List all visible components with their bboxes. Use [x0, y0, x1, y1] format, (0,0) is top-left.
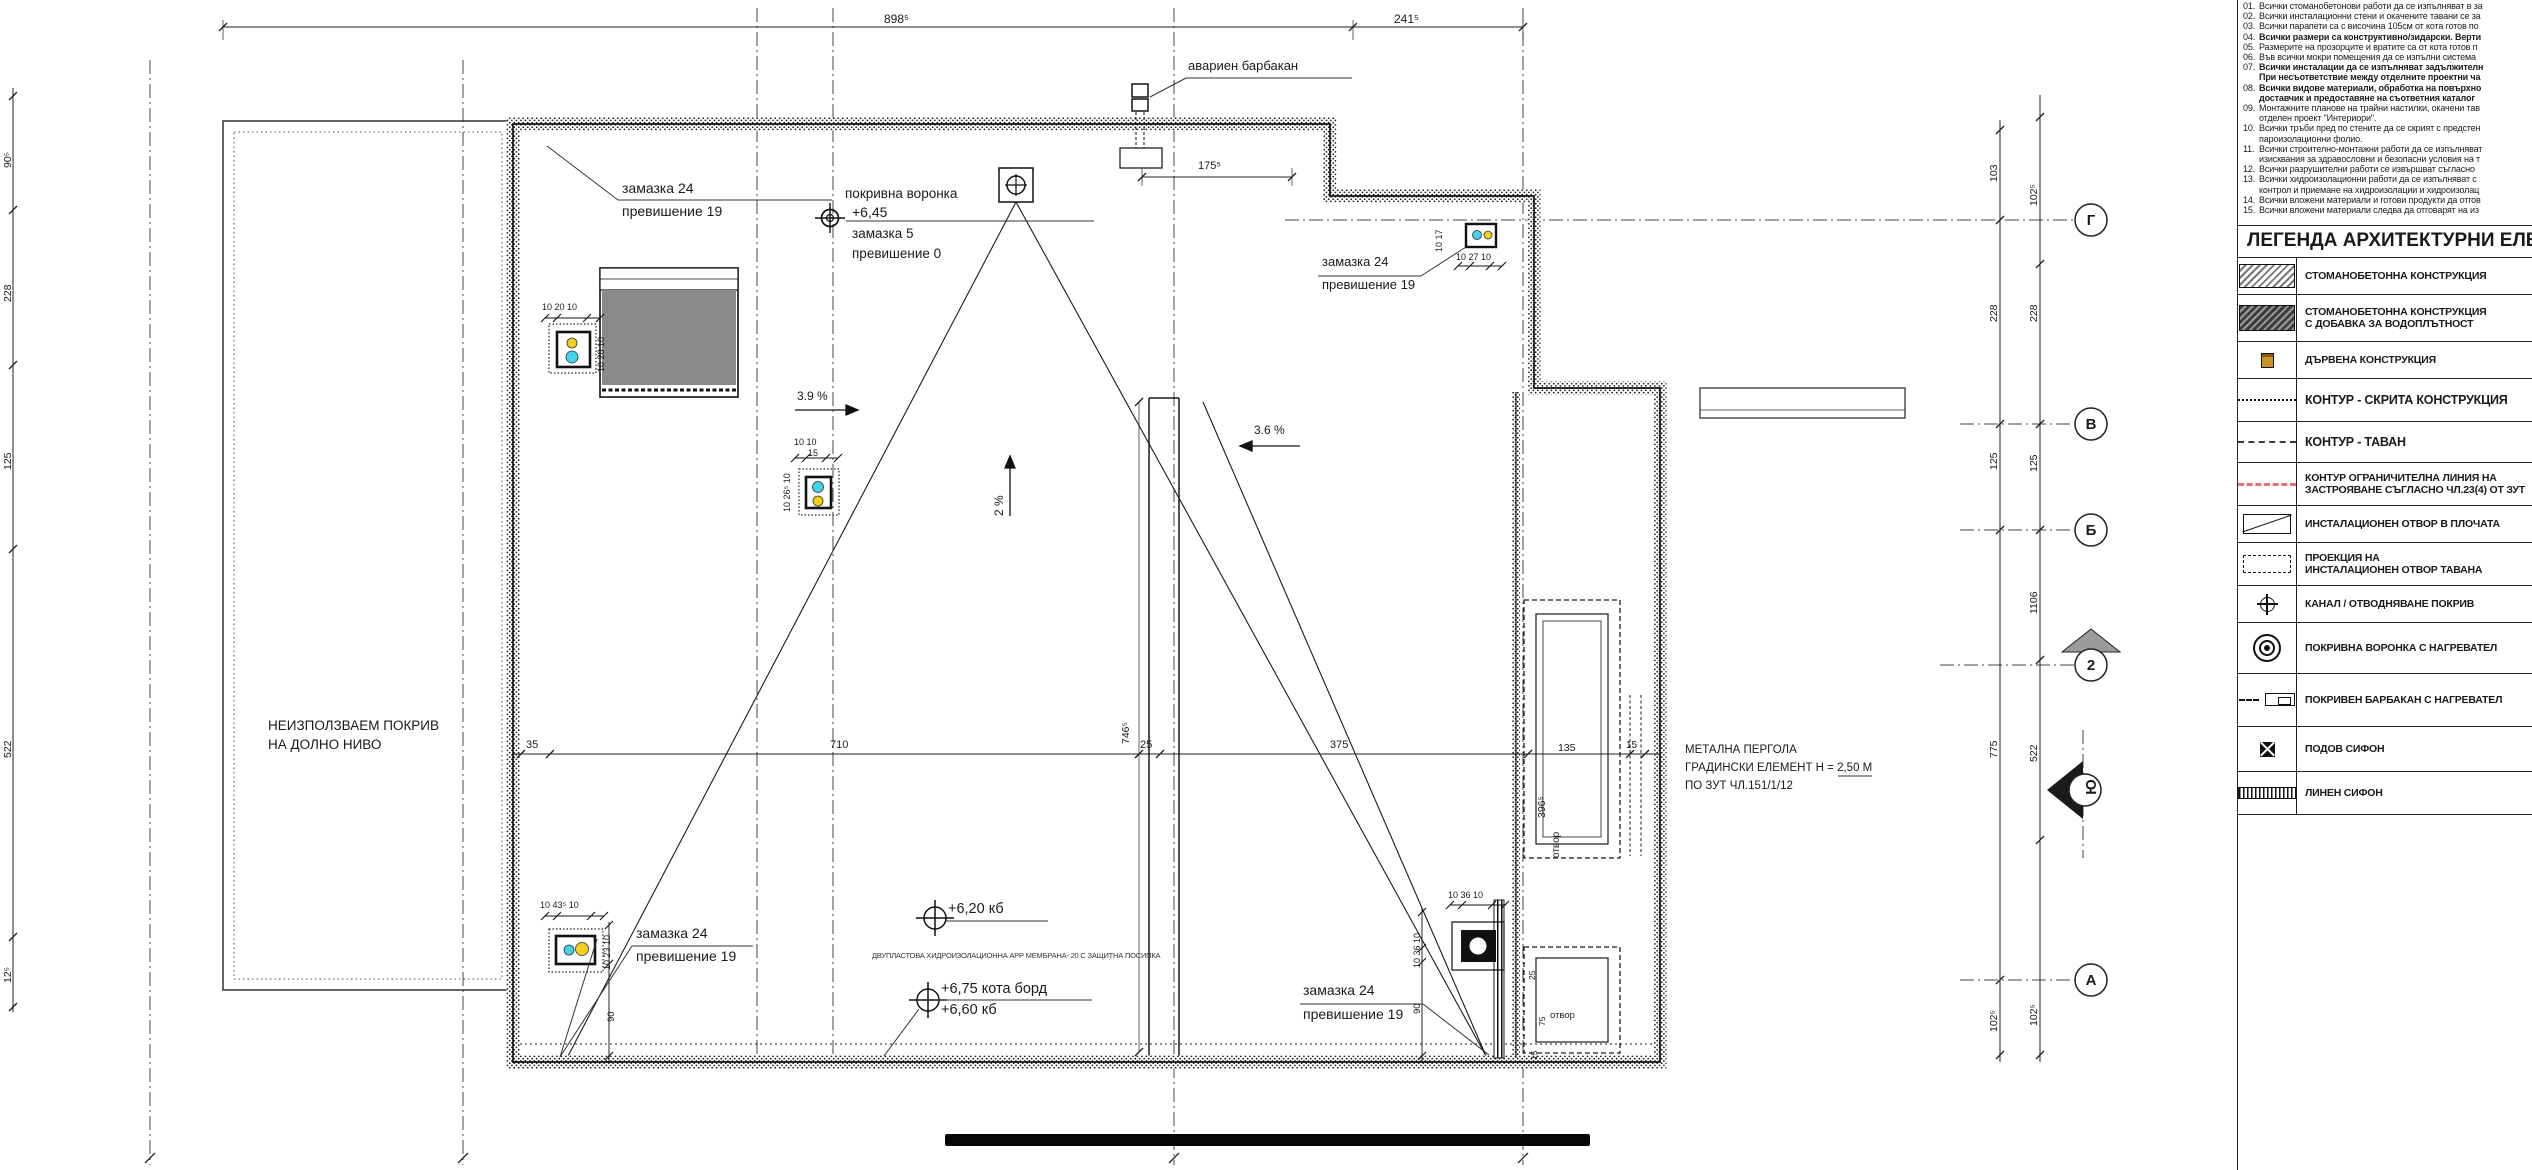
note-line: 01.Всички стоманобетонови работи да се и…: [2243, 1, 2532, 11]
grid-bubble-g: Г: [2075, 206, 2107, 234]
note-text: Във всички мокри помещения да се изпълни…: [2259, 52, 2476, 62]
note-line: 14.Всички вложени материали и готови про…: [2243, 195, 2532, 205]
legend-symbol-icon: [2239, 264, 2295, 288]
drain-top-left-icon: [541, 314, 604, 373]
note-line: 03.Всички парапети са с височина 105см о…: [2243, 21, 2532, 31]
note-number: 06.: [2243, 52, 2259, 62]
note-line: 08.Всички видове материали, обработка на…: [2243, 83, 2532, 93]
dim-ro-102a: 102⁵: [2028, 184, 2040, 206]
note-number: 12.: [2243, 164, 2259, 174]
legend-label-line1: КАНАЛ / ОТВОДНЯВАНЕ ПОКРИВ: [2305, 598, 2532, 610]
panel-divider-top: [2238, 225, 2532, 226]
legend-symbol-icon: [2238, 787, 2296, 799]
legend-symbol-icon: [2261, 353, 2274, 368]
label-emergency-scupper: авариен барбакан: [1188, 58, 1298, 73]
parapet-walls: [513, 124, 1660, 1062]
note-number: 14.: [2243, 195, 2259, 205]
note-number: 03.: [2243, 21, 2259, 31]
note-number: 11.: [2243, 144, 2259, 154]
label-screed-br: замазка 24: [1303, 982, 1375, 998]
note-number: 08.: [2243, 83, 2259, 93]
dimension-ticks: [9, 23, 2044, 1059]
drain-mid-icon: [791, 454, 842, 515]
legend-label: СТОМАНОБЕТОННА КОНСТРУКЦИЯ: [2297, 258, 2532, 294]
legend-symbol-cell: [2238, 295, 2297, 341]
legend-symbol-cell: [2238, 342, 2297, 378]
note-line: 13.Всички хидроизолационни работи да се …: [2243, 174, 2532, 184]
grid-lines: [150, 8, 2083, 1165]
label-membrane: ДВУПЛАСТОВА ХИДРОИЗОЛАЦИОННА АРР МЕМБРАН…: [872, 951, 1160, 960]
legend-label: ДЪРВЕНА КОНСТРУКЦИЯ: [2297, 342, 2532, 378]
linear-siphon-icon: [1494, 900, 1504, 1058]
note-line: 05.Размерите на прозорците и вратите са …: [2243, 42, 2532, 52]
dim-ro-102b: 102⁵: [2028, 1004, 2040, 1026]
dim-drain-b-w: 15: [808, 448, 818, 458]
legend-label: КОНТУР ОГРАНИЧИТЕЛНА ЛИНИЯ НА ЗАСТРОЯВАН…: [2297, 463, 2532, 505]
dim-drain-e-90: 90: [1412, 1003, 1423, 1014]
dim-shaft-75: 75: [1537, 1017, 1547, 1026]
roof-funnel-apex-icon: [999, 168, 1033, 202]
legend-symbol-cell: [2238, 586, 2297, 622]
label-pergola-2: ГРАДИНСКИ ЕЛЕМЕНТ Н = 2,50 М: [1685, 762, 1872, 774]
legend-label: ПОКРИВНА ВОРОНКА С НАГРЕВАТЕЛ: [2297, 623, 2532, 673]
legend-label: КОНТУР - ТАВАН: [2297, 422, 2532, 462]
dim-top-241: 241⁵: [1394, 12, 1419, 26]
dim-mid-35: 35: [526, 739, 538, 751]
note-text: Всички видове материали, обработка на по…: [2259, 83, 2481, 93]
legend-row: ПРОЕКЦИЯ НА ИНСТАЛАЦИОНЕН ОТВОР ТАВАНА: [2238, 543, 2532, 586]
note-number: 09.: [2243, 103, 2259, 113]
legend-symbol-cell: [2238, 506, 2297, 542]
legend-label: ИНСТАЛАЦИОНЕН ОТВОР В ПЛОЧАТА: [2297, 506, 2532, 542]
grid-bubble-v: В: [2075, 410, 2107, 438]
legend-symbol-icon: [2243, 514, 2291, 534]
grid-bubble-b: Б: [2075, 516, 2107, 544]
label-level-660: +6,60 кб: [941, 1002, 997, 1018]
legend-label-line1: СТОМАНОБЕТОННА КОНСТРУКЦИЯ: [2305, 306, 2532, 318]
note-number: 15.: [2243, 205, 2259, 215]
label-screed-bl: замазка 24: [636, 925, 708, 941]
note-line: 06.Във всички мокри помещения да се изпъ…: [2243, 52, 2532, 62]
legend-label-line1: ПОКРИВЕН БАРБАКАН С НАГРЕВАТЕЛ: [2305, 694, 2532, 706]
legend-label-line1: ДЪРВЕНА КОНСТРУКЦИЯ: [2305, 354, 2532, 366]
legend-label-line2: С ДОБАВКА ЗА ВОДОПЛЪТНОСТ: [2305, 318, 2532, 330]
note-line: 09.Монтажните планове на трайни настилки…: [2243, 103, 2532, 113]
note-text: контрол и приемане на хидроизолации и хи…: [2259, 185, 2479, 195]
legend-label-line1: ИНСТАЛАЦИОНЕН ОТВОР В ПЛОЧАТА: [2305, 518, 2532, 530]
legend-symbol-icon: [2243, 555, 2291, 573]
legend-row: ПОКРИВНА ВОРОНКА С НАГРЕВАТЕЛ: [2238, 623, 2532, 674]
note-text: доставчик и предоставяне на съответния к…: [2259, 93, 2475, 103]
note-text: Всички хидроизолационни работи да се изп…: [2259, 174, 2477, 184]
note-number: 10.: [2243, 123, 2259, 133]
note-text: Всички вложени материали и готови продук…: [2259, 195, 2481, 205]
legend-label-line2: ЗАСТРОЯВАНЕ СЪГЛАСНО ЧЛ.23(4) ОТ ЗУТ: [2305, 484, 2532, 496]
note-line: При несъответствие между отделните проек…: [2243, 72, 2532, 82]
dim-ro-125: 125: [2028, 454, 2040, 472]
note-line: 12.Всички разрушителни работи се извършв…: [2243, 164, 2532, 174]
legend-label-line1: ПОДОВ СИФОН: [2305, 743, 2532, 755]
note-line: 11.Всички строително-монтажни работи да …: [2243, 144, 2532, 154]
legend-symbol-cell: [2238, 772, 2297, 814]
dim-left-90: 90⁵: [2, 152, 14, 168]
dim-drain-b-v: 10 26⁵ 10: [782, 473, 792, 512]
note-line: доставчик и предоставяне на съответния к…: [2243, 93, 2532, 103]
grid-bubble-yu: Ю: [2077, 771, 2105, 803]
legend-row: СТОМАНОБЕТОННА КОНСТРУКЦИЯ С ДОБАВКА ЗА …: [2238, 295, 2532, 342]
note-text: пароизолационни фолио.: [2259, 134, 2362, 144]
legend-label: ЛИНЕН СИФОН: [2297, 772, 2532, 814]
dim-top-898: 898⁵: [884, 12, 909, 26]
dim-ro-522: 522: [2028, 744, 2040, 762]
lower-roof-outline: [223, 121, 513, 990]
dim-left-522: 522: [2, 740, 14, 758]
label-elevation-tr: превишение 19: [1322, 277, 1415, 292]
note-text: Всички размери са конструктивно/зидарски…: [2259, 32, 2481, 42]
legend-row: КОНТУР ОГРАНИЧИТЕЛНА ЛИНИЯ НА ЗАСТРОЯВАН…: [2238, 463, 2532, 506]
note-text: Всички инсталации да се изпълняват задъл…: [2259, 62, 2483, 72]
legend-label: ПРОЕКЦИЯ НА ИНСТАЛАЦИОНЕН ОТВОР ТАВАНА: [2297, 543, 2532, 585]
note-line: пароизолационни фолио.: [2243, 134, 2532, 144]
legend-label: ПОКРИВЕН БАРБАКАН С НАГРЕВАТЕЛ: [2297, 674, 2532, 726]
label-slope-2: 2 %: [992, 495, 1006, 516]
note-text: Всички вложени материали следва да отгов…: [2259, 205, 2479, 215]
note-text: Монтажните планове на трайни настилки, о…: [2259, 103, 2480, 113]
dim-drain-e-h: 10 36 10: [1448, 890, 1483, 900]
legend-row: КАНАЛ / ОТВОДНЯВАНЕ ПОКРИВ: [2238, 586, 2532, 623]
dim-mid-135: 135: [1558, 742, 1576, 754]
label-level-675: +6,75 кота борд: [941, 981, 1047, 997]
roof-element-gray: [600, 268, 738, 397]
legend-label-line1: ЛИНЕН СИФОН: [2305, 787, 2532, 799]
legend-label-line1: ПРОЕКЦИЯ НА: [2305, 552, 2532, 564]
dim-ro-1106: 1106: [2028, 591, 2040, 614]
note-line: 02.Всички инсталационни стени и окаченит…: [2243, 11, 2532, 21]
legend-symbol-icon: [2239, 693, 2295, 707]
legend-row: КОНТУР - СКРИТА КОНСТРУКЦИЯ: [2238, 379, 2532, 422]
label-slope-39: 3.9 %: [797, 389, 828, 403]
note-text: Всички парапети са с височина 105см от к…: [2259, 21, 2479, 31]
note-line: 07.Всички инсталации да се изпълняват за…: [2243, 62, 2532, 72]
dim-mid-25: 25: [1140, 739, 1152, 751]
label-otvor-lower: отвор: [1550, 1010, 1575, 1021]
legend-label-line1: КОНТУР - ТАВАН: [2305, 436, 2532, 448]
note-number: 04.: [2243, 32, 2259, 42]
legend-label-line1: КОНТУР ОГРАНИЧИТЕЛНА ЛИНИЯ НА: [2305, 472, 2532, 484]
legend-symbol-cell: [2238, 258, 2297, 294]
grid-bottom-ticks: [145, 1153, 1528, 1163]
dim-drain-d-90: 90: [606, 1011, 617, 1022]
right-parapet-strip: [1700, 388, 1905, 418]
dim-left-228: 228: [2, 284, 14, 302]
legend-row: ПОДОВ СИФОН: [2238, 727, 2532, 772]
dim-ri-228: 228: [1988, 304, 2000, 322]
dim-left-125: 125: [2, 452, 14, 470]
dim-left-12: 12⁵: [2, 967, 14, 983]
grid-bubble-2: 2: [2075, 651, 2107, 679]
note-number: 13.: [2243, 174, 2259, 184]
dim-shaft-25: 25: [1527, 971, 1537, 980]
drain-top-right-icon: [1454, 224, 1506, 270]
label-elevation-tl: превишение 19: [622, 203, 722, 219]
legend-symbol-cell: [2238, 727, 2297, 771]
dim-drain-a-h: 10 20 10: [542, 302, 577, 312]
note-line: 15.Всички вложени материали следва да от…: [2243, 205, 2532, 215]
legend-table: СТОМАНОБЕТОННА КОНСТРУКЦИЯ СТОМАНОБЕТОНН…: [2238, 258, 2532, 815]
dimension-lines: [13, 20, 2040, 1062]
dim-drain-a-v: 10 28 10: [596, 337, 606, 372]
dim-396: 396⁵: [1536, 796, 1548, 818]
legend-symbol-icon: [2238, 399, 2296, 401]
dim-mid-375: 375: [1330, 739, 1348, 751]
dim-746: 746⁵: [1120, 722, 1132, 744]
label-elevation-bl: превишение 19: [636, 948, 736, 964]
right-panel: 01.Всички стоманобетонови работи да се и…: [2237, 0, 2532, 1170]
legend-label-line1: КОНТУР - СКРИТА КОНСТРУКЦИЯ: [2305, 394, 2532, 406]
legend-row: ДЪРВЕНА КОНСТРУКЦИЯ: [2238, 342, 2532, 379]
dim-drain-e-v: 10 36 10: [1412, 933, 1422, 968]
label-unused-roof-1: НЕИЗПОЛЗВАЕМ ПОКРИВ: [268, 718, 439, 733]
note-number: 07.: [2243, 62, 2259, 72]
legend-symbol-cell: [2238, 422, 2297, 462]
note-text: отделен проект "Интериори".: [2259, 113, 2376, 123]
legend-symbol-icon: [2238, 441, 2296, 443]
note-line: 10.Всички тръби пред по стените да се ск…: [2243, 123, 2532, 133]
note-text: изисквания за здравословни и безопасни у…: [2259, 154, 2480, 164]
dim-ri-103: 103: [1988, 164, 2000, 182]
label-elevation0: превишение 0: [852, 246, 941, 261]
dim-175: 175⁵: [1198, 160, 1221, 172]
label-elevation-br: превишение 19: [1303, 1006, 1403, 1022]
dim-drain-d-v: 10 23 10: [602, 935, 612, 970]
note-line: 04.Всички размери са конструктивно/зидар…: [2243, 32, 2532, 42]
legend-symbol-icon: [2238, 483, 2296, 486]
note-text: Размерите на прозорците и вратите са от …: [2259, 42, 2477, 52]
grid-bubbles: [2047, 204, 2120, 996]
legend-row: СТОМАНОБЕТОННА КОНСТРУКЦИЯ: [2238, 258, 2532, 295]
label-slope-36: 3.6 %: [1254, 423, 1285, 437]
note-text: Всички инсталационни стени и окачените т…: [2259, 11, 2481, 21]
roof-plan-drawing: 898⁵ 241⁵ авариен барбакан 175⁵ замазка …: [0, 0, 2532, 1170]
legend-row: ЛИНЕН СИФОН: [2238, 772, 2532, 815]
note-text: Всички строително-монтажни работи да се …: [2259, 144, 2482, 154]
legend-title: ЛЕГЕНДА АРХИТЕКТУРНИ ЕЛЕМЕНТИ: [2247, 230, 2532, 252]
scale-bar: [945, 1134, 1590, 1146]
note-text: При несъответствие между отделните проек…: [2259, 72, 2480, 82]
legend-label-line2: ИНСТАЛАЦИОНЕН ОТВОР ТАВАНА: [2305, 564, 2532, 576]
legend-row: КОНТУР - ТАВАН: [2238, 422, 2532, 463]
note-number: 05.: [2243, 42, 2259, 52]
roof-funnel-icon: [815, 203, 845, 233]
legend-symbol-icon: [2239, 305, 2295, 331]
legend-symbol-icon: [2260, 597, 2275, 612]
legend-symbol-cell: [2238, 463, 2297, 505]
note-line: отделен проект "Интериори".: [2243, 113, 2532, 123]
legend-label-line1: СТОМАНОБЕТОННА КОНСТРУКЦИЯ: [2305, 270, 2532, 282]
legend-label: КАНАЛ / ОТВОДНЯВАНЕ ПОКРИВ: [2297, 586, 2532, 622]
dim-drain-c-v: 10 17: [1434, 229, 1444, 252]
dim-ri-125: 125: [1988, 452, 2000, 470]
note-line: изисквания за здравословни и безопасни у…: [2243, 154, 2532, 164]
notes-list: 01.Всички стоманобетонови работи да се и…: [2243, 1, 2532, 215]
legend-label: СТОМАНОБЕТОННА КОНСТРУКЦИЯ С ДОБАВКА ЗА …: [2297, 295, 2532, 341]
legend-symbol-cell: [2238, 543, 2297, 585]
dim-ro-228: 228: [2028, 304, 2040, 322]
legend-symbol-icon: [2253, 634, 2281, 662]
label-roof-funnel: покривна воронка: [845, 186, 957, 201]
legend-symbol-cell: [2238, 379, 2297, 421]
dim-ri-775: 775: [1988, 740, 2000, 758]
note-line: контрол и приемане на хидроизолации и хи…: [2243, 185, 2532, 195]
legend-row: ПОКРИВЕН БАРБАКАН С НАГРЕВАТЕЛ: [2238, 674, 2532, 727]
dim-mid-15: 15: [1626, 740, 1637, 751]
label-screed-tl: замазка 24: [622, 180, 694, 196]
label-unused-roof-2: НА ДОЛНО НИВО: [268, 737, 381, 752]
note-text: Всички тръби пред по стените да се скрия…: [2259, 123, 2480, 133]
dim-ri-102: 102⁵: [1988, 1010, 2000, 1032]
dim-drain-b-h: 10 10: [794, 437, 817, 447]
dim-shaft-15: 15: [1529, 1051, 1539, 1060]
legend-symbol-icon: [2260, 742, 2275, 757]
label-pergola-3: ПО ЗУТ ЧЛ.151/1/12: [1685, 780, 1793, 792]
label-pergola-1: МЕТАЛНА ПЕРГОЛА: [1685, 744, 1797, 756]
slope-arrows: [795, 405, 1300, 516]
note-text: Всички разрушителни работи се извършват …: [2259, 164, 2475, 174]
label-level-620: +6,20 кб: [948, 901, 1004, 917]
leader-lines: [547, 78, 1872, 1057]
legend-symbol-cell: [2238, 623, 2297, 673]
legend-label-line1: ПОКРИВНА ВОРОНКА С НАГРЕВАТЕЛ: [2305, 642, 2532, 654]
dim-mid-710: 710: [830, 739, 848, 751]
legend-symbol-cell: [2238, 674, 2297, 726]
plan-canvas: [0, 0, 2532, 1170]
label-screed-tr: замазка 24: [1322, 254, 1388, 269]
legend-label: КОНТУР - СКРИТА КОНСТРУКЦИЯ: [2297, 379, 2532, 421]
grid-bubble-a: А: [2075, 966, 2107, 994]
label-screed5: замазка 5: [852, 226, 914, 241]
label-otvor-upper: отвор: [1551, 832, 1562, 858]
dim-drain-d-h: 10 43⁵ 10: [540, 900, 579, 910]
label-funnel-level: +6,45: [852, 204, 887, 220]
legend-label: ПОДОВ СИФОН: [2297, 727, 2532, 771]
note-number: 02.: [2243, 11, 2259, 21]
note-number: 01.: [2243, 1, 2259, 11]
legend-row: ИНСТАЛАЦИОНЕН ОТВОР В ПЛОЧАТА: [2238, 506, 2532, 543]
dim-drain-c-h: 10 27 10: [1456, 252, 1491, 262]
note-text: Всички стоманобетонови работи да се изпъ…: [2259, 1, 2482, 11]
